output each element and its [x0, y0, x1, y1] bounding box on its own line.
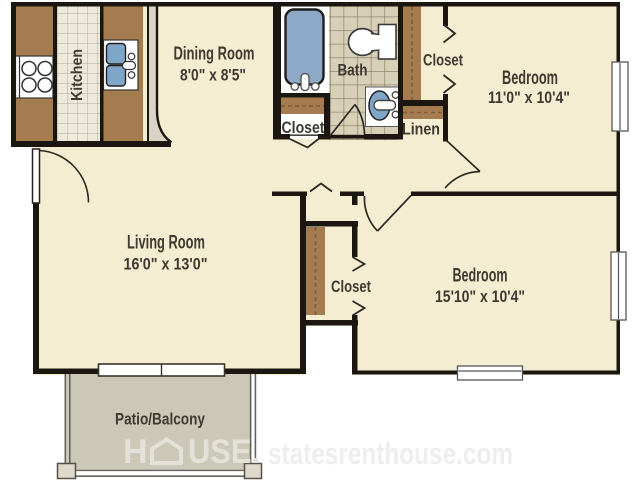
svg-text:15'10" x 10'4": 15'10" x 10'4": [435, 287, 525, 306]
svg-text:Bedroom: Bedroom: [502, 68, 558, 89]
svg-text:Bedroom: Bedroom: [453, 266, 508, 287]
svg-text:Bath: Bath: [338, 61, 368, 80]
svg-text:Living Room: Living Room: [127, 233, 205, 254]
svg-text:Linen: Linen: [402, 121, 440, 139]
svg-text:Dining Room: Dining Room: [174, 44, 255, 64]
svg-text:11'0" x 10'4": 11'0" x 10'4": [488, 88, 570, 107]
svg-text:H: H: [123, 433, 148, 471]
svg-text:Patio/Balcony: Patio/Balcony: [115, 410, 205, 429]
svg-text:USE.: USE.: [188, 433, 260, 471]
svg-text:16'0" x 13'0": 16'0" x 13'0": [124, 255, 208, 274]
svg-text:statesrenthouse.com: statesrenthouse.com: [268, 436, 513, 471]
svg-text:Closet: Closet: [423, 52, 463, 70]
svg-text:8'0" x 8'5": 8'0" x 8'5": [180, 66, 246, 85]
svg-text:Kitchen: Kitchen: [69, 49, 86, 101]
svg-text:Closet: Closet: [331, 278, 371, 296]
